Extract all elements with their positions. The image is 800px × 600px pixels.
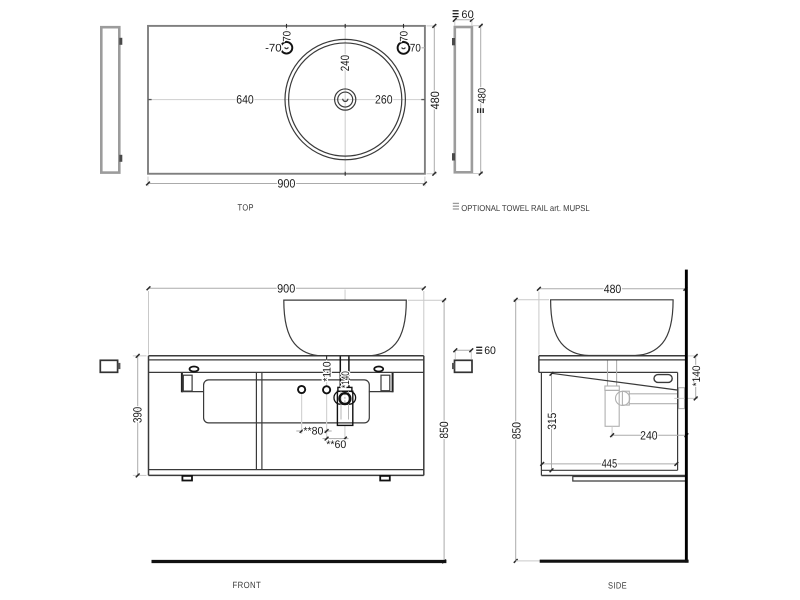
svg-text:70: 70 <box>398 31 410 42</box>
svg-text:60: 60 <box>484 345 496 357</box>
svg-text:TOP: TOP <box>238 203 254 213</box>
svg-text:FRONT: FRONT <box>233 580 262 590</box>
svg-text:*110: *110 <box>322 361 334 381</box>
svg-text:70: 70 <box>281 31 293 42</box>
svg-text:315: 315 <box>545 412 559 429</box>
svg-text:260: 260 <box>375 93 393 107</box>
svg-text:480: 480 <box>604 282 622 296</box>
svg-text:390: 390 <box>130 406 144 423</box>
svg-text:900: 900 <box>277 282 295 296</box>
svg-text:640: 640 <box>236 93 254 107</box>
svg-text:850: 850 <box>509 422 523 439</box>
svg-text:SIDE: SIDE <box>608 581 627 591</box>
svg-text:480: 480 <box>428 91 442 109</box>
svg-text:*140: *140 <box>691 366 703 387</box>
svg-text:900: 900 <box>277 177 295 191</box>
svg-text:**80: **80 <box>303 425 323 437</box>
svg-text:445: 445 <box>602 456 618 470</box>
svg-text:240: 240 <box>640 428 658 442</box>
svg-text:OPTIONAL TOWEL RAIL art. MUPSL: OPTIONAL TOWEL RAIL art. MUPSL <box>461 203 590 213</box>
svg-text:850: 850 <box>437 421 451 438</box>
svg-text:**60: **60 <box>326 439 346 451</box>
svg-text:70: 70 <box>410 43 421 55</box>
svg-text:-70: -70 <box>265 43 282 55</box>
svg-text:*140: *140 <box>340 371 352 388</box>
svg-text:480: 480 <box>477 88 489 104</box>
svg-text:240: 240 <box>338 55 352 72</box>
svg-text:60: 60 <box>461 9 473 21</box>
